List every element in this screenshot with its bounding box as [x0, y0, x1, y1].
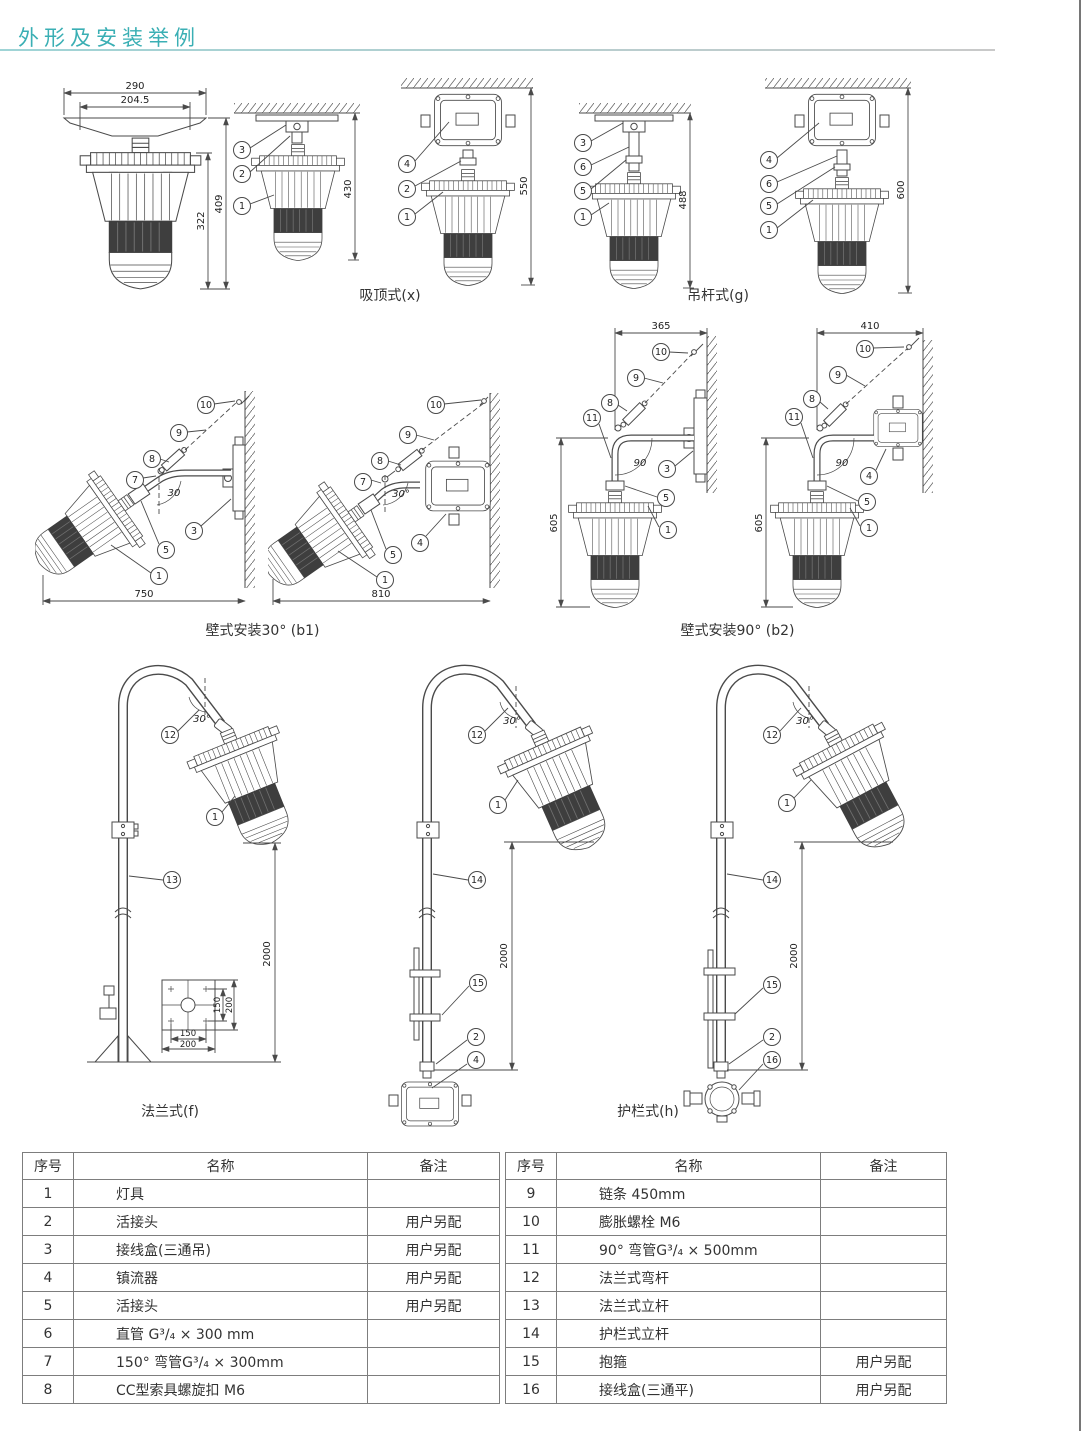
callout-5: 5 — [658, 490, 675, 507]
svg-text:1: 1 — [239, 201, 245, 212]
svg-text:9: 9 — [405, 430, 411, 441]
angle-label: 30° — [503, 716, 521, 727]
table-header-row: 序号 名称 备注 — [506, 1153, 946, 1180]
callout-4: 4 — [468, 1052, 485, 1069]
table-row: 14护栏式立杆 — [506, 1320, 946, 1348]
dim-430: 430 — [343, 179, 354, 198]
callout-1: 1 — [234, 198, 251, 215]
dim-322: 322 — [196, 211, 207, 230]
callout-12: 12 — [764, 727, 781, 744]
diagram-guardrail-pole-box: 30° 12 1 14 15 2 4 2000 — [370, 658, 670, 1128]
svg-text:11: 11 — [586, 413, 598, 424]
table-row: 1190° 弯管G³/₄ × 500mm — [506, 1236, 946, 1264]
callout-5: 5 — [158, 542, 175, 559]
callout-15: 15 — [470, 975, 487, 992]
svg-text:1: 1 — [766, 225, 772, 236]
callout-13: 13 — [164, 872, 181, 889]
svg-text:7: 7 — [132, 475, 138, 486]
header-note: 备注 — [821, 1153, 946, 1179]
diagram-lamp-dimensions: 290 204.5 409 322 — [50, 78, 235, 296]
callout-15: 15 — [764, 977, 781, 994]
svg-text:3: 3 — [580, 138, 586, 149]
table-row: 5活接头用户另配 — [23, 1292, 499, 1320]
svg-text:15: 15 — [766, 980, 778, 991]
table-row: 3接线盒(三通吊)用户另配 — [23, 1236, 499, 1264]
svg-text:14: 14 — [766, 875, 778, 886]
table-row: 16接线盒(三通平)用户另配 — [506, 1376, 946, 1403]
callout-14: 14 — [764, 872, 781, 889]
callout-12: 12 — [162, 727, 179, 744]
svg-text:5: 5 — [580, 186, 586, 197]
callout-1: 1 — [779, 795, 796, 812]
svg-text:1: 1 — [866, 523, 872, 534]
angle-label: 90 — [836, 458, 849, 469]
svg-text:13: 13 — [166, 875, 178, 886]
svg-text:12: 12 — [766, 730, 778, 741]
angle-label: 30 — [168, 488, 181, 499]
svg-text:1: 1 — [665, 525, 671, 536]
svg-text:2: 2 — [769, 1032, 775, 1043]
callout-5: 5 — [859, 494, 876, 511]
callout-1: 1 — [575, 209, 592, 226]
page-title: 外形及安装举例 — [18, 22, 200, 52]
callout-10: 10 — [198, 397, 215, 414]
svg-text:1: 1 — [495, 800, 501, 811]
callout-1: 1 — [490, 797, 507, 814]
angle-label: 30° — [796, 716, 814, 727]
flange-dim-150v: 150 — [213, 997, 223, 1013]
caption-wall-30: 壁式安装30° (b1) — [160, 620, 365, 640]
table-row: 15抱箍用户另配 — [506, 1348, 946, 1376]
table-row: 7150° 弯管G³/₄ × 300mm — [23, 1348, 499, 1376]
callout-9: 9 — [830, 367, 847, 384]
table-row: 12法兰式弯杆 — [506, 1264, 946, 1292]
callout-5: 5 — [385, 547, 402, 564]
callout-3: 3 — [575, 135, 592, 152]
svg-text:5: 5 — [663, 493, 669, 504]
callout-14: 14 — [469, 872, 486, 889]
angle-label: 30° — [392, 489, 410, 500]
header-no: 序号 — [506, 1153, 557, 1179]
callout-8: 8 — [804, 391, 821, 408]
dim-410: 410 — [860, 321, 879, 332]
svg-text:5: 5 — [390, 550, 396, 561]
callout-2: 2 — [234, 166, 251, 183]
svg-text:1: 1 — [404, 212, 410, 223]
callout-16: 16 — [764, 1052, 781, 1069]
dim-600: 600 — [896, 180, 907, 199]
svg-text:2: 2 — [473, 1032, 479, 1043]
diagram-wall-30-box: 30° 10 9 8 7 4 5 1 810 — [268, 383, 540, 613]
callout-1: 1 — [377, 572, 394, 589]
svg-text:5: 5 — [163, 545, 169, 556]
callout-1: 1 — [151, 568, 168, 585]
svg-text:4: 4 — [404, 159, 410, 170]
header-note: 备注 — [368, 1153, 499, 1179]
flange-dim-200v: 200 — [225, 997, 235, 1013]
svg-text:2: 2 — [404, 184, 410, 195]
svg-text:3: 3 — [239, 145, 245, 156]
callout-10: 10 — [428, 397, 445, 414]
svg-text:4: 4 — [866, 471, 872, 482]
callout-1: 1 — [207, 809, 224, 826]
svg-text:15: 15 — [472, 978, 484, 989]
svg-text:4: 4 — [766, 155, 772, 166]
dim-204.5: 204.5 — [121, 95, 150, 106]
svg-text:1: 1 — [212, 812, 218, 823]
diagram-pendant-mount-ballast: 600 4 6 5 1 — [753, 78, 923, 295]
callout-1: 1 — [861, 520, 878, 537]
svg-text:1: 1 — [156, 571, 162, 582]
svg-text:4: 4 — [417, 538, 423, 549]
callout-1: 1 — [399, 209, 416, 226]
dim-2000: 2000 — [499, 943, 510, 968]
callout-7: 7 — [355, 474, 372, 491]
dim-605: 605 — [549, 513, 560, 532]
svg-text:16: 16 — [766, 1055, 778, 1066]
caption-pendant-type: 吊杆式(g) — [628, 285, 808, 305]
callout-3: 3 — [234, 142, 251, 159]
callout-10: 10 — [857, 341, 874, 358]
dim-810: 810 — [371, 589, 390, 600]
callout-9: 9 — [400, 427, 417, 444]
manual-page: 外形及安装举例 — [0, 0, 1082, 1431]
callout-1: 1 — [761, 222, 778, 239]
svg-text:8: 8 — [149, 454, 155, 465]
callout-8: 8 — [372, 453, 389, 470]
table-row: 10膨胀螺栓 M6 — [506, 1208, 946, 1236]
table-row: 13法兰式立杆 — [506, 1292, 946, 1320]
table-row: 9链条 450mm — [506, 1180, 946, 1208]
dim-2000: 2000 — [789, 943, 800, 968]
table-row: 2活接头用户另配 — [23, 1208, 499, 1236]
diagram-guardrail-pole-round-box: 30° 12 1 14 15 2 16 2000 — [665, 658, 975, 1128]
caption-wall-90: 壁式安装90° (b2) — [635, 620, 840, 640]
callout-8: 8 — [144, 451, 161, 468]
svg-text:1: 1 — [382, 575, 388, 586]
flange-dim-150h: 150 — [180, 1029, 196, 1039]
svg-text:6: 6 — [580, 162, 586, 173]
callout-3: 3 — [186, 523, 203, 540]
svg-text:4: 4 — [473, 1055, 479, 1066]
diagram-pendant-mount: 488 3 6 5 1 — [573, 103, 698, 295]
svg-text:5: 5 — [766, 201, 772, 212]
svg-text:12: 12 — [164, 730, 176, 741]
callout-4: 4 — [399, 156, 416, 173]
svg-text:12: 12 — [471, 730, 483, 741]
svg-text:1: 1 — [784, 798, 790, 809]
header-name: 名称 — [74, 1153, 368, 1179]
svg-text:9: 9 — [835, 370, 841, 381]
callout-4: 4 — [761, 152, 778, 169]
svg-text:10: 10 — [859, 344, 871, 355]
callout-6: 6 — [575, 159, 592, 176]
svg-text:5: 5 — [864, 497, 870, 508]
callout-2: 2 — [468, 1029, 485, 1046]
caption-guardrail-type: 护栏式(h) — [558, 1101, 738, 1121]
svg-text:6: 6 — [766, 179, 772, 190]
dim-488: 488 — [678, 190, 689, 209]
caption-ceiling-type: 吸顶式(x) — [300, 285, 480, 305]
callout-4: 4 — [412, 535, 429, 552]
angle-label: 30° — [193, 714, 211, 725]
table-header-row: 序号 名称 备注 — [23, 1153, 499, 1180]
callout-3: 3 — [659, 461, 676, 478]
header-no: 序号 — [23, 1153, 74, 1179]
svg-text:8: 8 — [809, 394, 815, 405]
dim-2000: 2000 — [262, 941, 273, 966]
callout-1: 1 — [660, 522, 677, 539]
svg-text:8: 8 — [377, 456, 383, 467]
dim-750: 750 — [134, 589, 153, 600]
svg-text:9: 9 — [633, 373, 639, 384]
diagram-flange-pole: 30° 12 1 13 2000 150 200 150 200 — [75, 658, 365, 1113]
dim-550: 550 — [519, 176, 530, 195]
svg-text:10: 10 — [655, 347, 667, 358]
callout-7: 7 — [127, 472, 144, 489]
title-underline — [0, 49, 995, 51]
header-name: 名称 — [557, 1153, 821, 1179]
table-row: 4镇流器用户另配 — [23, 1264, 499, 1292]
diagram-wall-30-bracket: 30 10 9 8 7 3 5 1 750 — [35, 383, 270, 613]
dim-409: 409 — [214, 194, 225, 213]
svg-text:2: 2 — [239, 169, 245, 180]
svg-text:11: 11 — [788, 412, 800, 423]
callout-12: 12 — [469, 727, 486, 744]
parts-table-right: 序号 名称 备注 9链条 450mm 10膨胀螺栓 M6 1190° 弯管G³/… — [505, 1152, 947, 1404]
table-row: 6直管 G³/₄ × 300 mm — [23, 1320, 499, 1348]
callout-5: 5 — [761, 198, 778, 215]
angle-label: 90 — [634, 458, 647, 469]
callout-8: 8 — [602, 395, 619, 412]
diagram-wall-90-box: 90 410 605 10 9 8 11 4 5 1 — [753, 318, 1030, 613]
caption-flange-type: 法兰式(f) — [80, 1101, 260, 1121]
svg-text:9: 9 — [176, 428, 182, 439]
callout-2: 2 — [764, 1029, 781, 1046]
dim-605: 605 — [754, 513, 765, 532]
table-row: 8CC型索具螺旋扣 M6 — [23, 1376, 499, 1403]
callout-4: 4 — [861, 468, 878, 485]
dim-365: 365 — [651, 321, 670, 332]
svg-text:7: 7 — [360, 477, 366, 488]
callout-9: 9 — [171, 425, 188, 442]
callout-6: 6 — [761, 176, 778, 193]
callout-10: 10 — [653, 344, 670, 361]
svg-text:3: 3 — [191, 526, 197, 537]
callout-2: 2 — [399, 181, 416, 198]
diagram-ceiling-mount-ballast: 550 4 2 1 — [393, 78, 543, 295]
callout-11: 11 — [584, 410, 601, 427]
page-edge-line — [1079, 0, 1081, 1431]
svg-text:1: 1 — [580, 212, 586, 223]
svg-text:8: 8 — [607, 398, 613, 409]
svg-text:14: 14 — [471, 875, 483, 886]
callout-11: 11 — [786, 409, 803, 426]
svg-text:10: 10 — [200, 400, 212, 411]
diagram-ceiling-mount: 430 3 2 1 — [228, 103, 368, 295]
svg-text:3: 3 — [664, 464, 670, 475]
callout-5: 5 — [575, 183, 592, 200]
dim-290: 290 — [125, 81, 144, 92]
svg-text:10: 10 — [430, 400, 442, 411]
table-row: 1灯具 — [23, 1180, 499, 1208]
flange-dim-200h: 200 — [180, 1040, 196, 1050]
callout-9: 9 — [628, 370, 645, 387]
parts-table-left: 序号 名称 备注 1灯具 2活接头用户另配 3接线盒(三通吊)用户另配 4镇流器… — [22, 1152, 500, 1404]
